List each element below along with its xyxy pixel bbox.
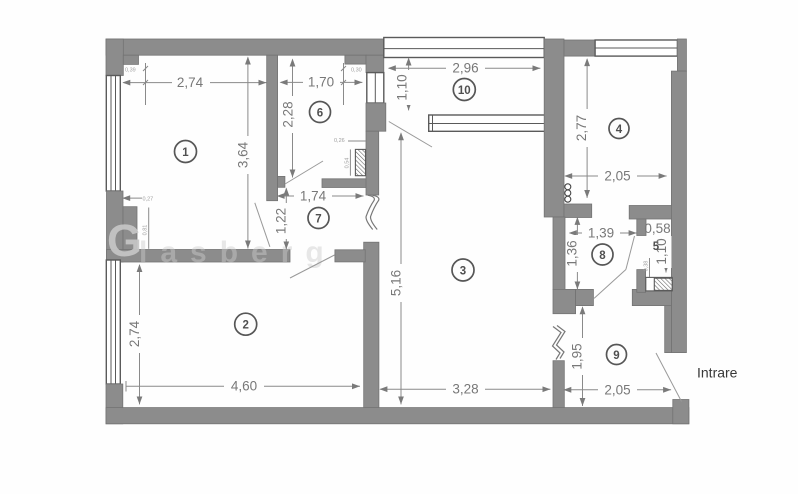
svg-text:4,60: 4,60 xyxy=(231,379,257,394)
svg-text:0,39: 0,39 xyxy=(125,68,136,74)
svg-text:0,26: 0,26 xyxy=(334,138,345,144)
svg-text:3,64: 3,64 xyxy=(236,141,251,168)
svg-text:0,58: 0,58 xyxy=(644,221,670,236)
svg-text:0,27: 0,27 xyxy=(143,197,154,203)
svg-text:3,28: 3,28 xyxy=(452,382,478,397)
svg-text:5: 5 xyxy=(653,241,660,253)
svg-text:G: G xyxy=(107,215,142,266)
svg-text:2: 2 xyxy=(242,320,248,332)
svg-text:2,05: 2,05 xyxy=(604,382,630,397)
svg-text:0,54: 0,54 xyxy=(345,158,351,169)
svg-text:4: 4 xyxy=(616,124,623,136)
svg-text:1,22: 1,22 xyxy=(274,208,289,234)
svg-text:0,30: 0,30 xyxy=(351,68,362,74)
svg-text:1,36: 1,36 xyxy=(565,240,580,266)
svg-text:Intrare: Intrare xyxy=(697,365,738,381)
svg-text:5,16: 5,16 xyxy=(389,270,404,296)
svg-text:2,77: 2,77 xyxy=(574,115,589,141)
svg-text:1,39: 1,39 xyxy=(588,226,614,241)
svg-text:1,10: 1,10 xyxy=(395,74,410,100)
svg-text:6: 6 xyxy=(317,108,323,120)
svg-text:0,81: 0,81 xyxy=(143,225,149,236)
svg-text:1,74: 1,74 xyxy=(300,189,327,204)
svg-text:2,74: 2,74 xyxy=(177,75,204,90)
svg-text:1,70: 1,70 xyxy=(308,75,334,90)
svg-text:2,05: 2,05 xyxy=(604,169,630,184)
svg-text:10: 10 xyxy=(458,85,471,97)
svg-text:0,38: 0,38 xyxy=(644,261,650,272)
svg-text:9: 9 xyxy=(613,350,619,362)
svg-text:8: 8 xyxy=(599,250,606,262)
svg-text:2,28: 2,28 xyxy=(281,101,296,127)
svg-text:1: 1 xyxy=(182,147,189,159)
svg-text:2,96: 2,96 xyxy=(452,61,478,76)
svg-text:7: 7 xyxy=(315,214,321,226)
svg-text:lasberg: lasberg xyxy=(139,236,337,269)
svg-text:3: 3 xyxy=(460,266,466,278)
svg-text:2,74: 2,74 xyxy=(127,320,142,347)
svg-text:1,95: 1,95 xyxy=(570,343,585,369)
